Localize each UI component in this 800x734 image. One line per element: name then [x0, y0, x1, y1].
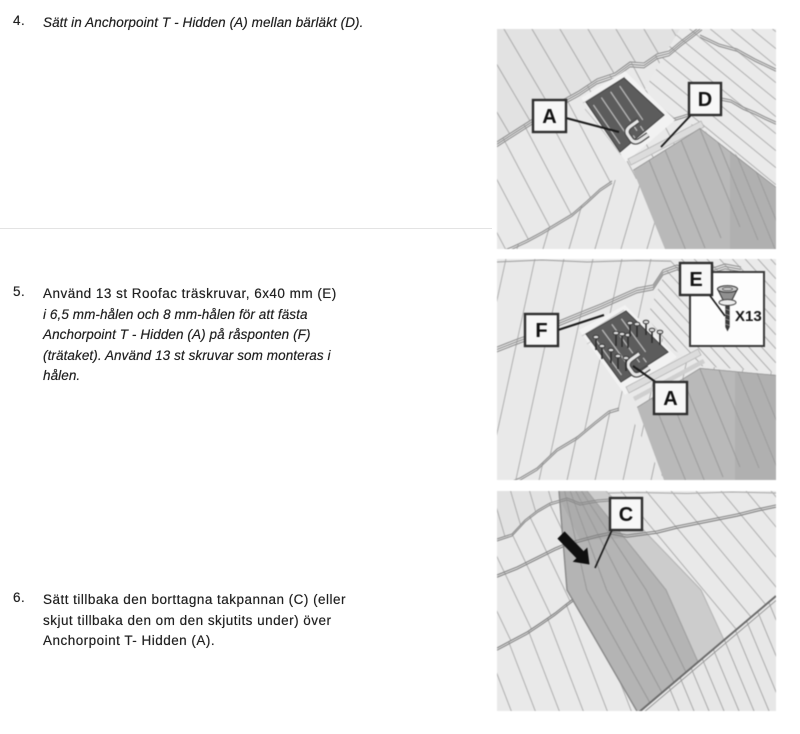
svg-text:F: F: [535, 320, 547, 342]
svg-text:E: E: [689, 269, 702, 291]
svg-text:X13: X13: [735, 308, 762, 325]
svg-text:A: A: [542, 106, 556, 128]
svg-text:D: D: [698, 89, 712, 111]
svg-text:A: A: [663, 388, 677, 410]
svg-text:C: C: [619, 504, 633, 526]
